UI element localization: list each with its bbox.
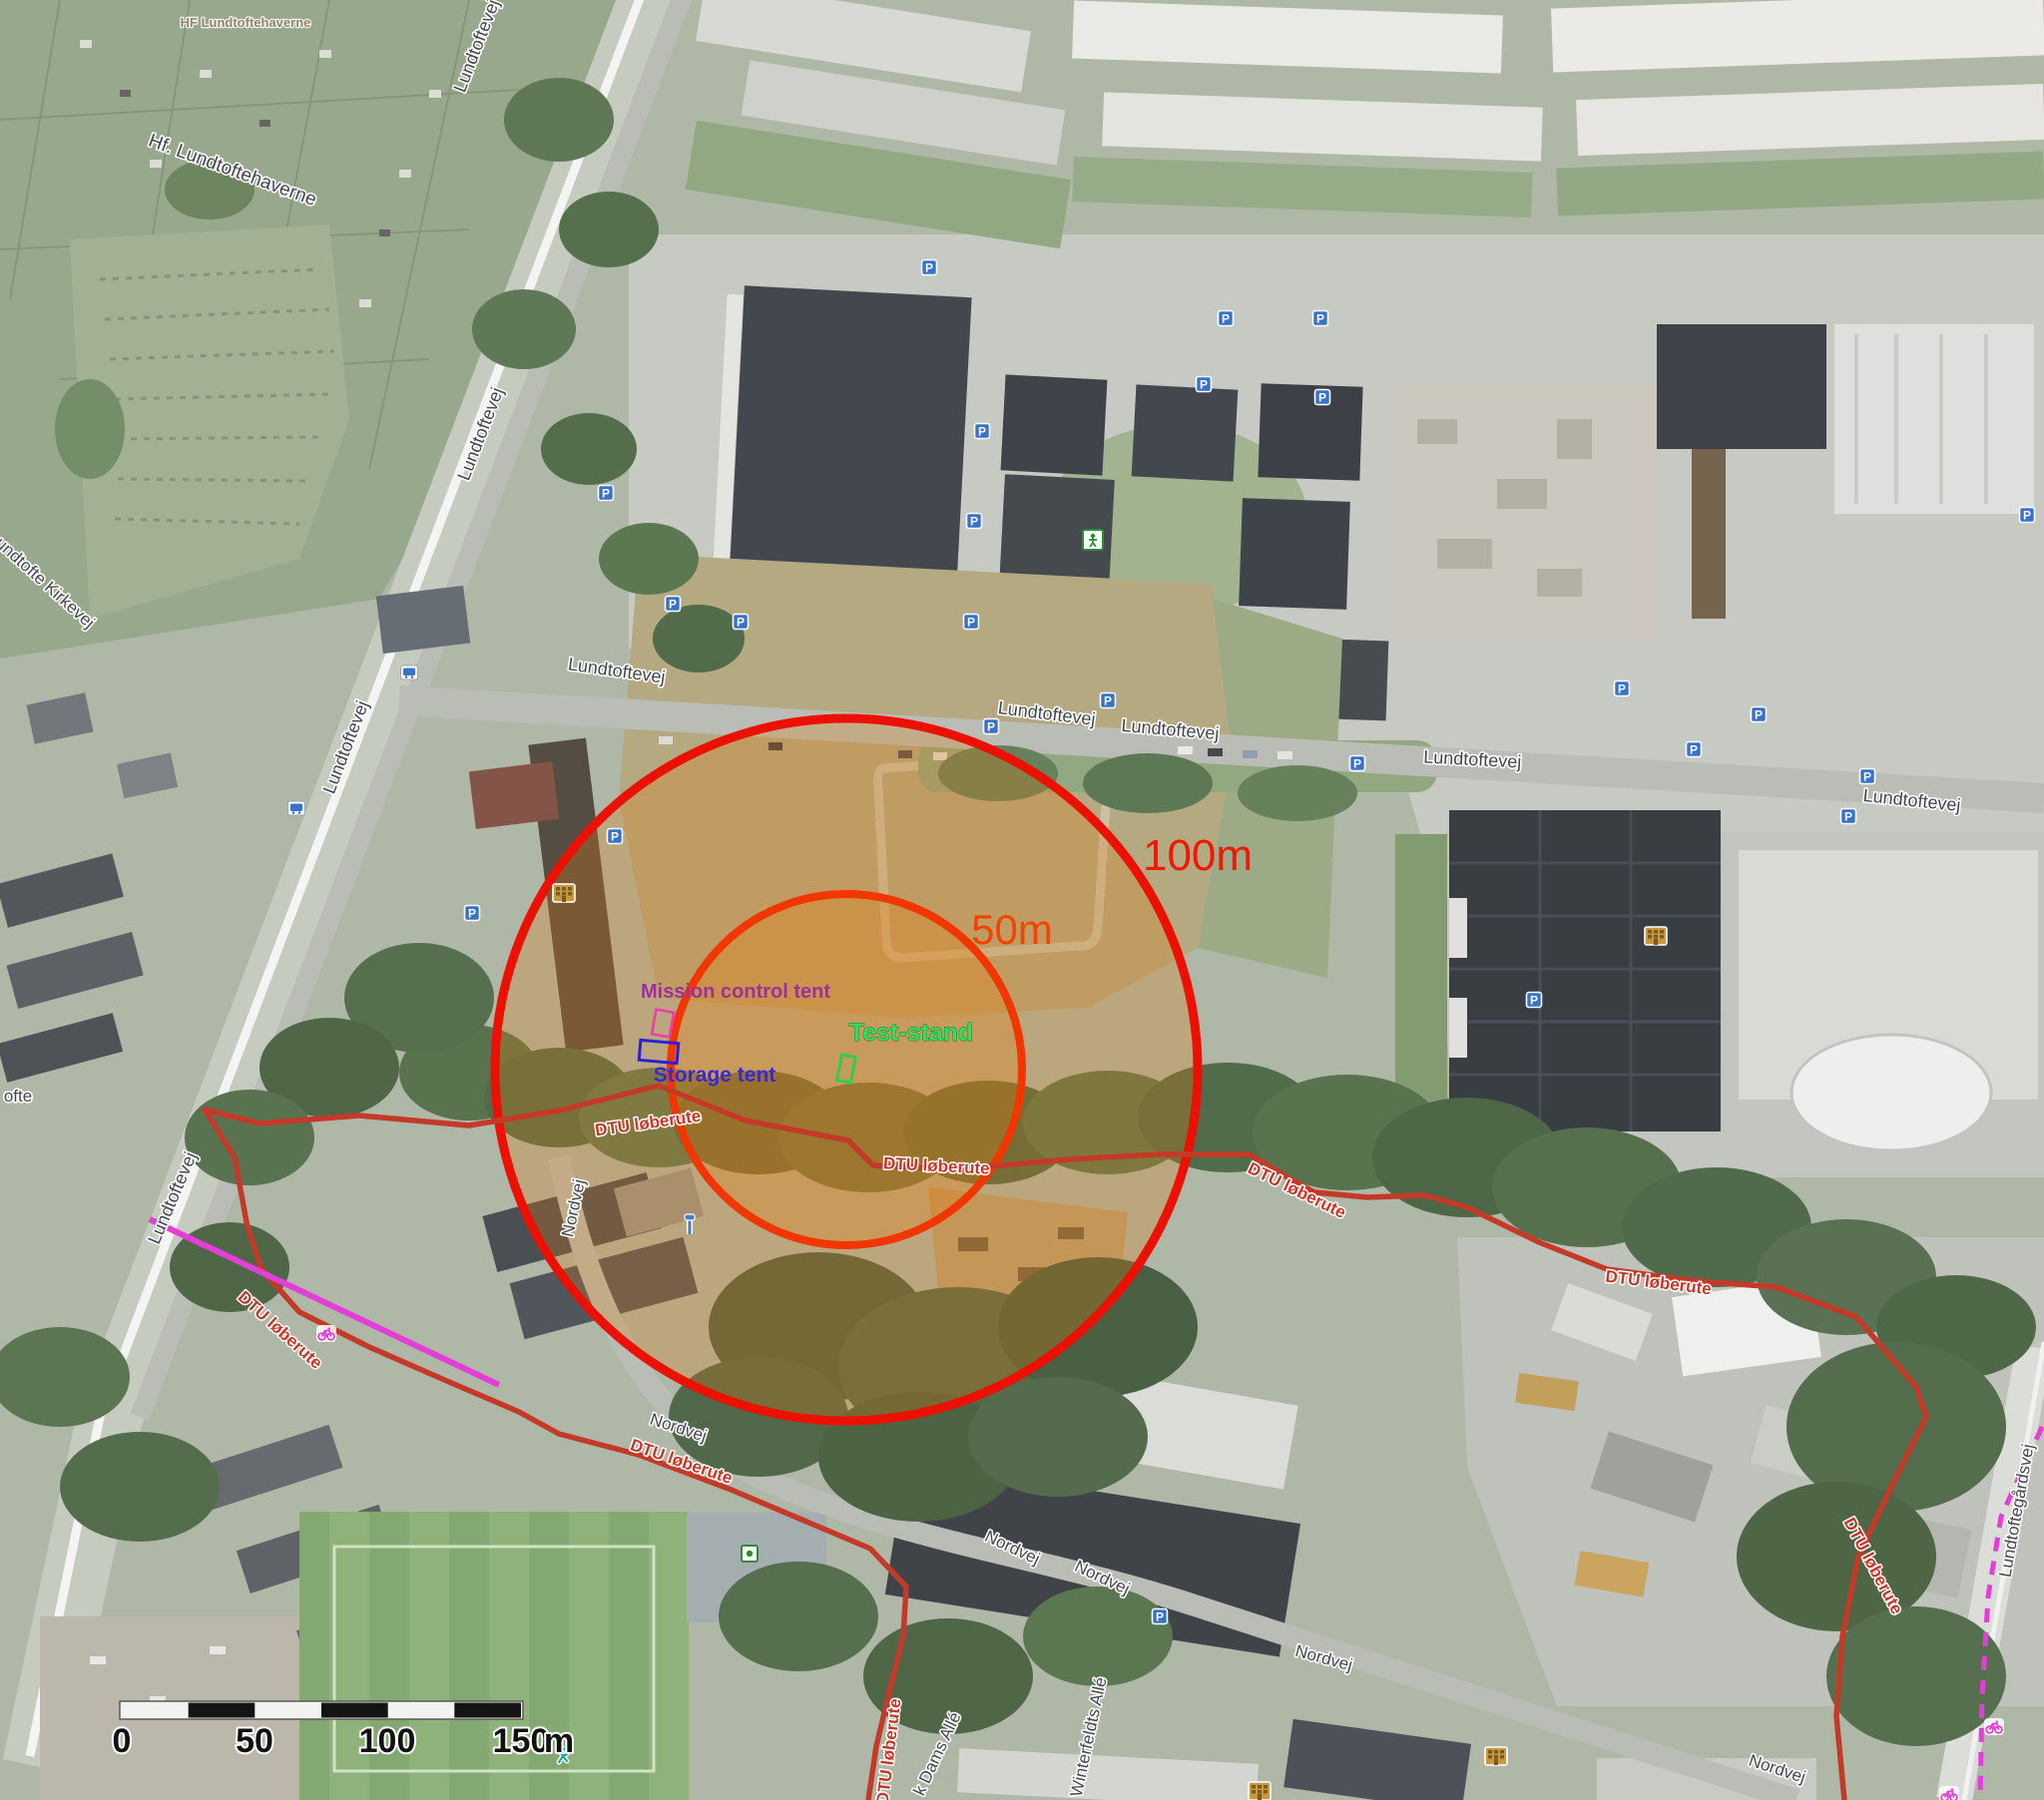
parking-icon: P bbox=[1860, 769, 1875, 784]
zone-50m-label: 50m bbox=[971, 906, 1053, 953]
bicycle-icon bbox=[1939, 1786, 1959, 1800]
bus-icon bbox=[401, 666, 418, 679]
parking-icon: P bbox=[1101, 693, 1116, 708]
building-icon bbox=[1645, 927, 1667, 945]
building-icon bbox=[1485, 1747, 1507, 1765]
parking-icon: P bbox=[1153, 1609, 1168, 1624]
svg-text:P: P bbox=[1104, 694, 1112, 708]
parking-icon: P bbox=[666, 597, 681, 612]
parking-icon: P bbox=[1615, 681, 1630, 696]
playground-icon bbox=[1083, 530, 1103, 550]
parking-icon: P bbox=[1841, 809, 1856, 824]
svg-text:P: P bbox=[1530, 994, 1538, 1008]
parking-icon: P bbox=[1197, 377, 1212, 392]
svg-text:P: P bbox=[1690, 743, 1698, 757]
storage-tent-label: Storage tent bbox=[654, 1064, 776, 1087]
street-label: ofte bbox=[4, 1087, 32, 1106]
bus-icon bbox=[288, 801, 305, 815]
scale-unit: m bbox=[544, 1722, 574, 1760]
svg-text:P: P bbox=[737, 616, 745, 630]
parking-icon: P bbox=[1315, 390, 1330, 405]
svg-text:P: P bbox=[967, 616, 975, 630]
parking-icon: P bbox=[1752, 707, 1767, 722]
svg-text:P: P bbox=[987, 720, 995, 734]
parking-icon: P bbox=[964, 615, 979, 630]
svg-text:P: P bbox=[1318, 391, 1326, 405]
parking-icon: P bbox=[1350, 756, 1365, 771]
mission-control-tent-label: Mission control tent bbox=[641, 981, 830, 1003]
svg-text:P: P bbox=[1316, 312, 1324, 326]
svg-text:P: P bbox=[925, 261, 933, 275]
parking-icon: P bbox=[1527, 993, 1542, 1008]
svg-text:P: P bbox=[1353, 757, 1361, 771]
parking-icon: P bbox=[1313, 311, 1328, 326]
parking-icon: P bbox=[967, 514, 982, 529]
svg-text:P: P bbox=[669, 598, 677, 612]
parking-icon: P bbox=[734, 615, 749, 630]
parking-icon: P bbox=[1219, 311, 1234, 326]
bicycle-icon bbox=[1984, 1718, 2004, 1735]
scale-tick-label: 0 bbox=[113, 1722, 132, 1760]
map-canvas[interactable]: PPPPPPPPPPPPPPPPPPPPPPPP HF Lundtoftehav… bbox=[0, 0, 2044, 1800]
svg-text:P: P bbox=[1156, 1610, 1164, 1624]
svg-text:P: P bbox=[978, 425, 986, 439]
parking-icon: P bbox=[608, 829, 623, 844]
parking-icon: P bbox=[599, 486, 614, 501]
scale-tick-label: 100 bbox=[359, 1722, 416, 1760]
svg-text:P: P bbox=[1844, 810, 1852, 824]
area-label: HF Lundtoftehaverne bbox=[181, 15, 311, 30]
parking-icon: P bbox=[975, 424, 990, 439]
sports-court-icon bbox=[742, 1546, 758, 1562]
svg-text:P: P bbox=[2023, 509, 2031, 523]
svg-text:P: P bbox=[468, 907, 476, 921]
svg-text:P: P bbox=[1755, 708, 1763, 722]
svg-text:P: P bbox=[1200, 378, 1208, 392]
building-icon bbox=[553, 884, 575, 902]
svg-text:P: P bbox=[602, 487, 610, 501]
parking-icon: P bbox=[2020, 508, 2035, 523]
bicycle-icon bbox=[316, 1325, 336, 1342]
parking-icon: P bbox=[465, 906, 480, 921]
zone-100m-label: 100m bbox=[1143, 831, 1253, 880]
building-icon bbox=[1249, 1782, 1271, 1800]
test-stand-label: Test-stand bbox=[849, 1019, 974, 1047]
parking-icon: P bbox=[1687, 742, 1702, 757]
scale-tick-label: 50 bbox=[236, 1722, 273, 1760]
svg-text:P: P bbox=[611, 830, 619, 844]
parking-icon: P bbox=[984, 719, 999, 734]
svg-text:P: P bbox=[970, 515, 978, 529]
parking-icon: P bbox=[922, 260, 937, 275]
svg-text:P: P bbox=[1222, 312, 1230, 326]
svg-text:P: P bbox=[1863, 770, 1871, 784]
safety-zones bbox=[495, 718, 1198, 1421]
scale-tick-label: 150 bbox=[493, 1722, 550, 1760]
svg-text:P: P bbox=[1618, 682, 1626, 696]
